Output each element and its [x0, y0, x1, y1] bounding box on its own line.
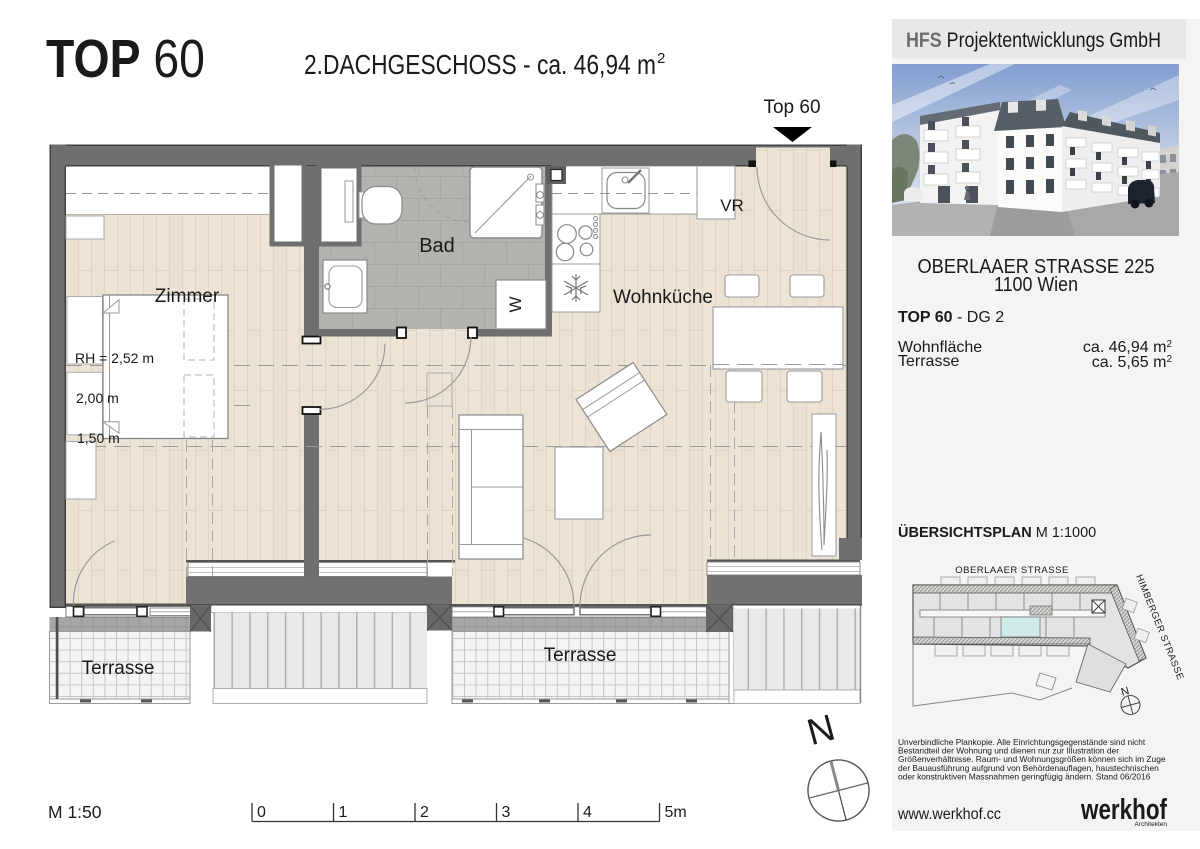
svg-text:W: W: [506, 296, 525, 312]
svg-text:4: 4: [583, 804, 592, 821]
svg-text:1100 Wien: 1100 Wien: [994, 274, 1078, 296]
svg-text:2: 2: [657, 50, 665, 67]
svg-text:2.DACHGESCHOSS - ca. 46,94 m: 2.DACHGESCHOSS - ca. 46,94 m: [304, 49, 656, 80]
svg-text:Bad: Bad: [419, 235, 455, 257]
svg-text:ÜBERSICHTSPLAN M 1:1000: ÜBERSICHTSPLAN M 1:1000: [898, 524, 1096, 541]
svg-text:M 1:50: M 1:50: [48, 802, 102, 822]
svg-text:Terrasse: Terrasse: [82, 658, 155, 679]
svg-text:VR: VR: [720, 196, 744, 215]
svg-text:www.werkhof.cc: www.werkhof.cc: [897, 806, 1001, 823]
svg-text:3: 3: [502, 804, 511, 821]
svg-text:Terrasse: Terrasse: [898, 353, 959, 370]
svg-text:OBERLAAER STRASSE: OBERLAAER STRASSE: [955, 565, 1069, 576]
svg-text:Architekten: Architekten: [1134, 821, 1167, 828]
svg-text:1,50 m: 1,50 m: [77, 430, 120, 446]
svg-text:5m: 5m: [665, 804, 687, 821]
svg-text:TOP 60: TOP 60: [46, 29, 205, 89]
svg-text:oder konstruktiven Massnahmen: oder konstruktiven Massnahmen geringfügi…: [898, 771, 1151, 781]
svg-text:TOP 60 - DG 2: TOP 60 - DG 2: [898, 309, 1004, 326]
svg-text:HFS Projektentwicklungs GmbH: HFS Projektentwicklungs GmbH: [906, 28, 1161, 52]
svg-text:2,00 m: 2,00 m: [76, 390, 119, 406]
svg-text:2: 2: [420, 804, 429, 821]
svg-text:Top 60: Top 60: [763, 97, 820, 118]
svg-text:1: 1: [339, 804, 348, 821]
svg-text:Terrasse: Terrasse: [544, 645, 617, 666]
svg-text:RH = 2,52 m: RH = 2,52 m: [75, 350, 154, 366]
svg-text:Wohnküche: Wohnküche: [613, 287, 713, 308]
svg-text:ca. 5,65 m2: ca. 5,65 m2: [1092, 354, 1173, 371]
svg-text:Zimmer: Zimmer: [155, 286, 220, 307]
svg-text:0: 0: [257, 804, 266, 821]
